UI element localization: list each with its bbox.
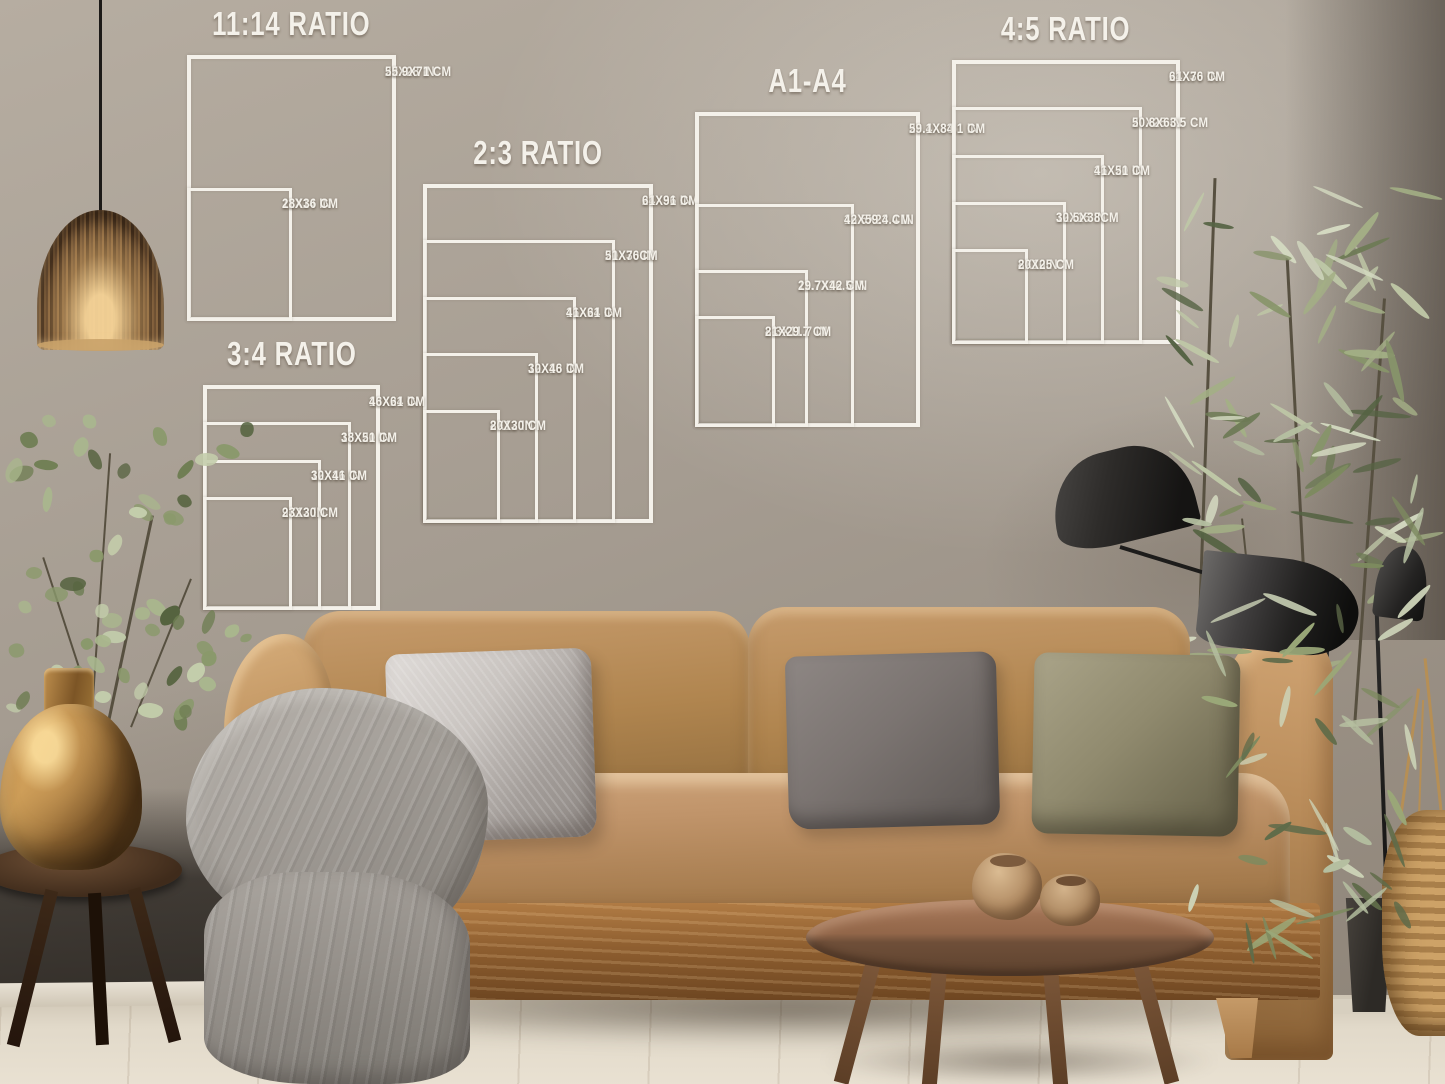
plant-leaf bbox=[170, 696, 198, 723]
plant-leaf bbox=[1244, 922, 1255, 964]
plant-leaf bbox=[1262, 657, 1293, 664]
plant-leaf bbox=[1385, 788, 1409, 827]
plant-leaf bbox=[1302, 463, 1351, 501]
plant-leaf bbox=[8, 464, 36, 484]
plant-leaf bbox=[136, 491, 162, 514]
size-label-cm: 21X29.7 CM bbox=[765, 324, 831, 340]
size-chart-a1-a4: A1-A423.4X33.1 IN59.1X84.1 CM16.5X23.4 I… bbox=[695, 112, 920, 427]
plant-leaf bbox=[1409, 474, 1420, 504]
size-label-cm: 46X61 CM bbox=[369, 394, 425, 410]
clay-pot-large-rim bbox=[990, 855, 1026, 867]
size-label-cm: 30.5X38CM bbox=[1056, 210, 1119, 226]
plant-leaf bbox=[1376, 616, 1415, 643]
size-chart-ratio-11-14: 11:14 RATIO22X28 IN55.9X71 CM11X14 IN28X… bbox=[187, 55, 396, 321]
plant-leaf bbox=[199, 648, 220, 668]
plant-leaf bbox=[1332, 236, 1390, 263]
size-label-cm: 28X36 CM bbox=[282, 196, 338, 212]
plant-leaf bbox=[1392, 899, 1414, 930]
plant-leaf bbox=[1344, 348, 1396, 360]
size-box: 11X14 IN28X36 CM bbox=[187, 188, 292, 321]
plant-leaf bbox=[1322, 857, 1352, 875]
size-label-cm: 20X30 CM bbox=[490, 418, 546, 434]
plant-leaf bbox=[197, 673, 219, 694]
size-label-cm: 41X61 CM bbox=[566, 305, 622, 321]
plant-leaf bbox=[195, 453, 218, 466]
plant-leaf bbox=[1239, 731, 1258, 761]
plant-leaf bbox=[1389, 280, 1432, 322]
plant-leaf bbox=[1245, 915, 1299, 954]
plant-leaf bbox=[1316, 305, 1339, 345]
size-label-cm: 30X46 CM bbox=[528, 361, 584, 377]
plant-leaf bbox=[1400, 507, 1427, 565]
plant-leaf bbox=[151, 425, 170, 448]
plant-leaf bbox=[1308, 798, 1341, 852]
size-label-cm: 50.8X63.5 CM bbox=[1132, 115, 1208, 131]
plant-leaf bbox=[1268, 821, 1327, 837]
plant-leaf bbox=[1261, 916, 1277, 960]
chart-title: 3:4 RATIO bbox=[195, 335, 388, 379]
plant-leaf bbox=[1403, 723, 1419, 770]
plant-leaf bbox=[1160, 285, 1204, 315]
plant-leaf bbox=[1339, 716, 1388, 728]
plant-leaf bbox=[1312, 650, 1354, 697]
plant-leaf bbox=[1182, 516, 1213, 528]
plant-leaf bbox=[1203, 220, 1234, 230]
plant-leaf bbox=[1341, 210, 1382, 258]
size-label-cm: 51X76CM bbox=[605, 248, 658, 264]
tall-plant-front-layer bbox=[1178, 378, 1445, 962]
plant-leaf bbox=[60, 576, 87, 591]
plant-leaf bbox=[1390, 495, 1427, 548]
plant-leaf bbox=[1294, 238, 1327, 283]
plant-leaf bbox=[1263, 820, 1293, 842]
plant-leaf bbox=[1316, 223, 1351, 237]
plant-leaf bbox=[1201, 693, 1239, 709]
plant-leaf bbox=[1156, 274, 1190, 290]
plant-leaf bbox=[1313, 184, 1364, 210]
size-label-cm: 29.7X42 CM bbox=[798, 278, 864, 294]
plant-leaf bbox=[1242, 499, 1277, 512]
size-label-cm: 38X51 CM bbox=[341, 430, 397, 446]
plant-leaf bbox=[40, 412, 58, 430]
plant-leaf bbox=[6, 640, 27, 661]
plant-leaf bbox=[1164, 333, 1195, 367]
plant-leaf bbox=[143, 621, 162, 639]
plant-leaf bbox=[1350, 562, 1384, 569]
plant-leaf bbox=[176, 702, 194, 720]
plant-leaf bbox=[175, 492, 194, 511]
plant-leaf bbox=[104, 532, 125, 557]
living-room-size-guide-scene: 11:14 RATIO22X28 IN55.9X71 CM11X14 IN28X… bbox=[0, 0, 1445, 1084]
plant-leaf bbox=[128, 505, 148, 520]
plant-leaf bbox=[1300, 270, 1339, 317]
plant-leaf bbox=[1296, 906, 1355, 925]
plant-leaf bbox=[183, 659, 209, 685]
chart-title: A1-A4 bbox=[685, 62, 931, 106]
plant-leaf bbox=[1360, 685, 1401, 710]
plant-leaf bbox=[199, 609, 219, 636]
size-label-cm: 23X30 CM bbox=[282, 505, 338, 521]
plant-leaf bbox=[93, 602, 111, 620]
plant-leaf bbox=[1280, 621, 1317, 659]
plant-leaf bbox=[1340, 713, 1375, 747]
plant-leaf bbox=[1182, 192, 1206, 233]
plant-leaf bbox=[1265, 928, 1314, 961]
plant-leaf bbox=[25, 566, 42, 580]
plant-leaf bbox=[1268, 896, 1315, 920]
plant-leaf bbox=[16, 598, 34, 616]
plant-leaf bbox=[1186, 883, 1201, 912]
plant-leaf bbox=[1341, 824, 1373, 849]
plant-leaf bbox=[1239, 751, 1268, 766]
plant-leaf bbox=[101, 612, 123, 630]
plant-leaf bbox=[239, 633, 253, 644]
plant-leaf bbox=[41, 486, 54, 512]
pendant-lamp-cord bbox=[99, 0, 102, 214]
plant-leaf bbox=[161, 507, 186, 529]
size-label-cm: 42X59.4 CM bbox=[844, 212, 910, 228]
plant-leaf bbox=[1218, 503, 1245, 518]
size-label-cm: 61X76 CM bbox=[1169, 69, 1225, 85]
plant-leaf bbox=[1354, 245, 1378, 292]
plant-leaf bbox=[86, 447, 105, 472]
plant-leaf bbox=[95, 690, 112, 703]
plant-leaf bbox=[5, 702, 22, 715]
plant-leaf bbox=[71, 580, 85, 597]
plant-leaf bbox=[1264, 439, 1300, 443]
plant-leaf bbox=[1277, 685, 1293, 727]
size-label-cm: 30X41 CM bbox=[311, 468, 367, 484]
plant-leaf bbox=[1322, 380, 1356, 419]
plant-leaf bbox=[238, 420, 255, 438]
plant-leaf bbox=[1350, 880, 1384, 913]
plant-leaf bbox=[1, 456, 26, 486]
plant-stem bbox=[130, 578, 192, 727]
plant-leaf bbox=[1237, 852, 1268, 867]
plant-leaf bbox=[222, 622, 242, 640]
plant-leaf bbox=[1337, 346, 1390, 375]
size-label-cm: 55.9X71 CM bbox=[385, 64, 451, 80]
plant-leaf bbox=[114, 461, 133, 481]
plant-leaf bbox=[1232, 438, 1265, 458]
plant-leaf bbox=[1269, 233, 1299, 266]
plant-leaf bbox=[1175, 308, 1200, 330]
plant-leaf bbox=[1227, 314, 1242, 348]
plant-leaf bbox=[1312, 255, 1349, 292]
size-label-cm: 61X91 CM bbox=[642, 193, 698, 209]
plant-leaf bbox=[1209, 596, 1266, 624]
plant-leaf bbox=[79, 636, 96, 653]
plant-leaf bbox=[33, 458, 58, 471]
plant-leaf bbox=[1174, 336, 1221, 365]
size-chart-ratio-2-3: 2:3 RATIO24X36 IN61X91 CM20X30 IN51X76CM… bbox=[423, 184, 653, 523]
plant-leaf bbox=[1369, 871, 1393, 892]
plant-leaf bbox=[1335, 603, 1345, 633]
plant-leaf bbox=[1272, 420, 1314, 444]
plant-leaf bbox=[1389, 185, 1443, 202]
chart-title: 11:14 RATIO bbox=[177, 5, 405, 49]
size-box: 8X10IN20X25 CM bbox=[952, 249, 1028, 344]
plant-leaf bbox=[1312, 238, 1341, 300]
chart-title: 2:3 RATIO bbox=[412, 134, 663, 178]
plant-leaf bbox=[81, 412, 99, 431]
size-box: 8X12 IN20X30 CM bbox=[423, 410, 500, 523]
plant-leaf bbox=[1256, 303, 1283, 317]
pendant-lamp-rim bbox=[37, 339, 164, 351]
eucalyptus-plant bbox=[0, 393, 258, 728]
plant-leaf bbox=[1373, 523, 1407, 546]
pillow-dark-gray bbox=[785, 651, 1000, 829]
plant-leaf bbox=[70, 435, 92, 459]
plant-leaf bbox=[1207, 647, 1252, 655]
plant-leaf bbox=[144, 595, 170, 620]
plant-leaf bbox=[1313, 716, 1339, 747]
clay-pot-small-rim bbox=[1056, 876, 1086, 886]
plant-leaf bbox=[174, 458, 196, 481]
plant-leaf bbox=[13, 689, 33, 712]
plant-leaf bbox=[1325, 852, 1365, 881]
plant-leaf bbox=[1325, 252, 1384, 283]
plant-leaf bbox=[1262, 590, 1318, 619]
plant-leaf bbox=[1224, 735, 1262, 779]
plant-leaf bbox=[1344, 886, 1388, 923]
chart-title: 4:5 RATIO bbox=[942, 10, 1191, 54]
size-label-cm: 20X25 CM bbox=[1018, 257, 1074, 273]
plant-leaf bbox=[1204, 629, 1227, 677]
plant-leaf bbox=[1395, 583, 1433, 620]
plant-leaf bbox=[17, 428, 41, 452]
plant-leaf bbox=[214, 441, 241, 463]
plant-leaf bbox=[1324, 822, 1340, 864]
plant-stem bbox=[105, 515, 154, 731]
plant-leaf bbox=[1382, 813, 1406, 868]
plant-leaf bbox=[1342, 264, 1381, 304]
gray-throw-blanket-drape bbox=[204, 872, 470, 1084]
plant-leaf bbox=[1345, 298, 1386, 316]
plant-leaf bbox=[134, 605, 152, 621]
plant-leaf bbox=[1279, 646, 1325, 656]
plant-leaf bbox=[162, 511, 177, 526]
plant-leaf bbox=[1248, 288, 1292, 320]
plant-leaf bbox=[194, 638, 216, 660]
size-box: 8.3X11.7 IN21X29.7 CM bbox=[695, 316, 775, 427]
plant-leaf bbox=[163, 664, 185, 688]
plant-leaf bbox=[1341, 880, 1370, 916]
